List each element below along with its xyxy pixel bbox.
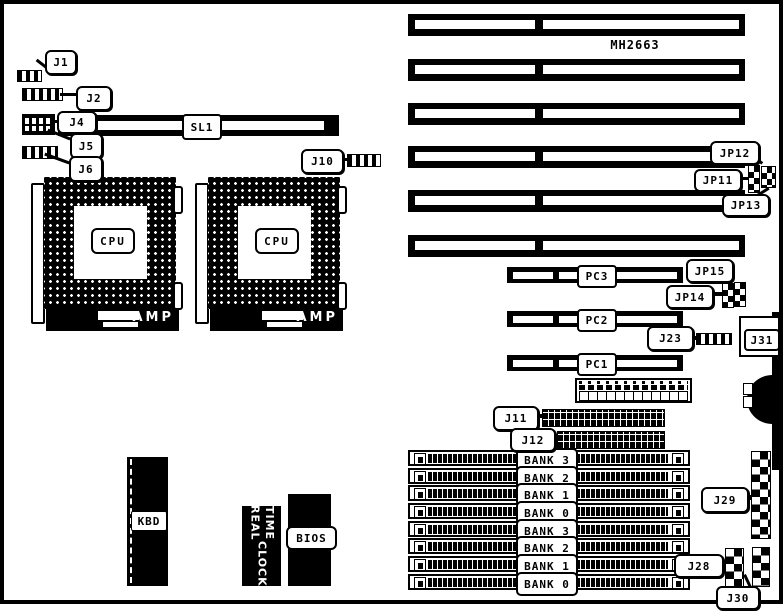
- jumper-block-jp15: [734, 282, 746, 307]
- bank-label: BANK 0: [516, 572, 578, 596]
- isa-slot-5: [408, 190, 745, 212]
- simm-bank-row: BANK 0: [408, 574, 690, 590]
- connector-j12: [557, 431, 665, 449]
- simm-bank-row: BANK 1: [408, 485, 690, 501]
- pci-label-pc2: PC2: [577, 309, 617, 332]
- isa-slot-6: [408, 235, 745, 257]
- callout-j29: J29: [701, 487, 749, 513]
- din-notch: [743, 383, 753, 395]
- isa-slot-1: [408, 14, 745, 36]
- board-model-label: MH2663: [590, 38, 680, 52]
- pci-slot-pc3: PC3: [507, 267, 683, 283]
- jumper-block-jp12: [761, 166, 776, 188]
- pci-slot-pc2: PC2: [507, 311, 683, 327]
- din-notch: [743, 396, 753, 408]
- connector-j23: [696, 333, 732, 345]
- callout-j10: J10: [301, 149, 344, 174]
- callout-j30: J30: [716, 586, 760, 610]
- connector-j29: [751, 451, 771, 539]
- pci-label-pc3: PC3: [577, 265, 617, 288]
- callout-j28: J28: [674, 554, 724, 578]
- callout-jp15: JP15: [686, 259, 734, 283]
- cpu1-tab: [173, 282, 183, 310]
- callout-j4: J4: [57, 111, 97, 134]
- connector-j28: [725, 548, 744, 587]
- cpu2-socket-lever: [195, 183, 209, 324]
- callout-jp12: JP12: [710, 141, 760, 165]
- bios-label: BIOS: [286, 526, 337, 550]
- connector-j30: [752, 547, 770, 587]
- callout-j6: J6: [69, 156, 103, 182]
- callout-j23: J23: [647, 326, 694, 351]
- jumper-block-jp14: [722, 283, 734, 308]
- callout-j31: J31: [744, 329, 780, 351]
- pci-slot-pc1: PC1: [507, 355, 683, 371]
- cpu2-tab: [337, 186, 347, 214]
- connector-j11: [542, 409, 665, 427]
- callout-j2: J2: [76, 86, 112, 111]
- simm-bank-row: BANK 3: [408, 450, 690, 466]
- cpu1-socket-lever: [31, 183, 45, 324]
- cpu2-tab: [337, 282, 347, 310]
- callout-jp11: JP11: [694, 169, 742, 192]
- cpu1-tab: [173, 186, 183, 214]
- simm-bank-row: BANK 3: [408, 521, 690, 537]
- cpu1-amp-socket-base: AMP: [46, 305, 179, 331]
- simm-bank-row: BANK 2: [408, 468, 690, 484]
- rtc-label: REAL TIME CLOCK: [242, 506, 281, 586]
- connector-j10: [347, 154, 381, 167]
- callout-j12: J12: [510, 428, 556, 452]
- simm-bank-row: BANK 1: [408, 556, 690, 572]
- amp-brand-label: AMP: [132, 310, 174, 325]
- cpu2-amp-socket-base: AMP: [210, 305, 343, 331]
- simm-bank-row: BANK 2: [408, 538, 690, 554]
- kbd-label: KBD: [131, 511, 167, 531]
- callout-jp14: JP14: [666, 285, 714, 309]
- rtc-chip: REAL TIME CLOCK: [242, 506, 281, 586]
- isa-slot-4: [408, 146, 745, 168]
- isa-slot-3: [408, 103, 745, 125]
- callout-jp13: JP13: [722, 194, 770, 217]
- sl1-label: SL1: [182, 114, 222, 140]
- power-connector: [575, 378, 692, 403]
- connector-j2: [22, 88, 63, 101]
- amp-brand-label: AMP: [296, 310, 338, 325]
- callout-j1: J1: [45, 50, 77, 75]
- connector-j1: [17, 70, 42, 82]
- jumper-block-jp11: [748, 165, 760, 193]
- cpu1-label: CPU: [91, 228, 135, 254]
- isa-slot-2: [408, 59, 745, 81]
- cpu2-label: CPU: [255, 228, 299, 254]
- pci-label-pc1: PC1: [577, 353, 617, 376]
- simm-bank-row: BANK 0: [408, 503, 690, 519]
- motherboard-diagram: MH2663 JP12 JP11 JP13 PC3 PC2 PC1 JP15 J…: [0, 0, 784, 611]
